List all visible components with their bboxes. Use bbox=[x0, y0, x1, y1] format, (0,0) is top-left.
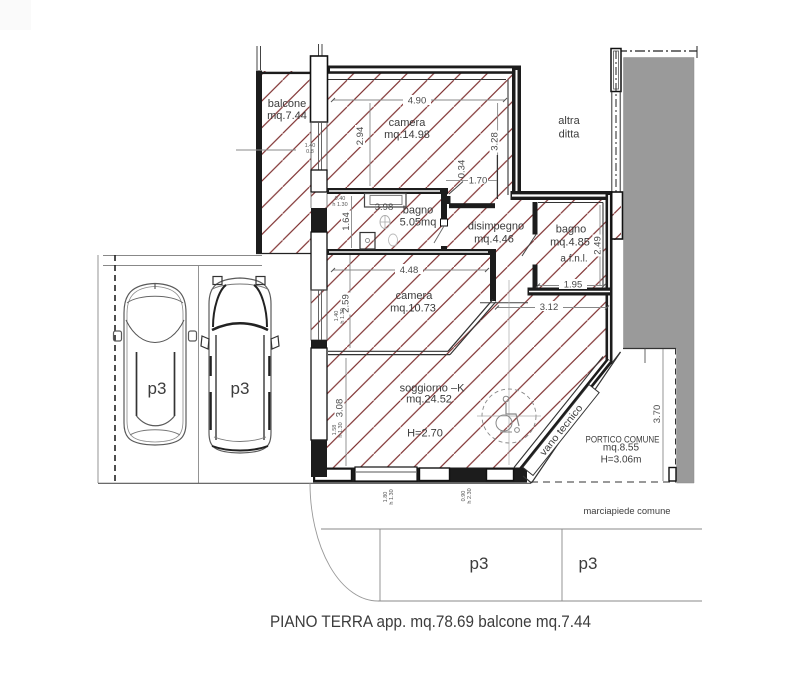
svg-text:bagno: bagno bbox=[403, 205, 434, 217]
svg-text:H=3.06m: H=3.06m bbox=[601, 455, 642, 466]
svg-text:bagno: bagno bbox=[556, 224, 587, 236]
svg-text:0.8: 0.8 bbox=[306, 149, 314, 155]
svg-text:mq.24.52: mq.24.52 bbox=[406, 394, 452, 406]
svg-text:h 2.30: h 2.30 bbox=[467, 488, 473, 503]
svg-text:h 1.30: h 1.30 bbox=[389, 489, 395, 504]
svg-text:h 1.30: h 1.30 bbox=[332, 202, 347, 208]
svg-text:2.94: 2.94 bbox=[355, 127, 366, 146]
svg-text:camera: camera bbox=[396, 290, 434, 302]
svg-text:h 1.30: h 1.30 bbox=[340, 308, 346, 323]
svg-text:p3: p3 bbox=[231, 379, 250, 398]
svg-text:3.28: 3.28 bbox=[490, 132, 501, 151]
svg-text:mq.14.98: mq.14.98 bbox=[384, 129, 430, 141]
svg-text:1.64: 1.64 bbox=[341, 212, 352, 231]
svg-text:5.05mq: 5.05mq bbox=[400, 217, 437, 229]
svg-text:p3: p3 bbox=[579, 554, 598, 573]
svg-text:4.90: 4.90 bbox=[408, 96, 427, 107]
svg-text:3.98: 3.98 bbox=[375, 202, 394, 213]
svg-text:balcone: balcone bbox=[268, 98, 307, 110]
svg-text:PIANO TERRA app. mq.78.69 balc: PIANO TERRA app. mq.78.69 balcone mq.7.4… bbox=[270, 612, 591, 631]
svg-text:3.12: 3.12 bbox=[540, 302, 559, 313]
svg-text:h 1.30: h 1.30 bbox=[338, 422, 344, 437]
svg-text:mq.8.55: mq.8.55 bbox=[603, 443, 640, 454]
svg-text:p3: p3 bbox=[470, 554, 489, 573]
svg-text:camera: camera bbox=[389, 117, 427, 129]
svg-text:p3: p3 bbox=[148, 379, 167, 398]
svg-text:4.48: 4.48 bbox=[400, 265, 419, 276]
svg-text:mq.4.46: mq.4.46 bbox=[474, 234, 514, 246]
svg-text:mq.10.73: mq.10.73 bbox=[390, 303, 436, 315]
svg-text:a.f.n.l.: a.f.n.l. bbox=[560, 254, 587, 265]
svg-text:1.70: 1.70 bbox=[469, 176, 488, 187]
svg-text:H=2.70: H=2.70 bbox=[407, 428, 443, 440]
svg-text:marciapiede comune: marciapiede comune bbox=[584, 506, 671, 517]
svg-text:ditta: ditta bbox=[559, 129, 581, 141]
svg-text:mq.4.85: mq.4.85 bbox=[550, 237, 590, 249]
svg-text:0.34: 0.34 bbox=[457, 160, 468, 179]
svg-text:2.49: 2.49 bbox=[593, 236, 604, 255]
svg-text:3.08: 3.08 bbox=[335, 399, 346, 418]
svg-text:1.95: 1.95 bbox=[564, 280, 583, 291]
svg-text:altra: altra bbox=[558, 115, 580, 127]
svg-text:disimpegno: disimpegno bbox=[468, 221, 524, 233]
svg-text:3.70: 3.70 bbox=[652, 405, 663, 424]
svg-text:mq.7.44: mq.7.44 bbox=[267, 110, 307, 122]
